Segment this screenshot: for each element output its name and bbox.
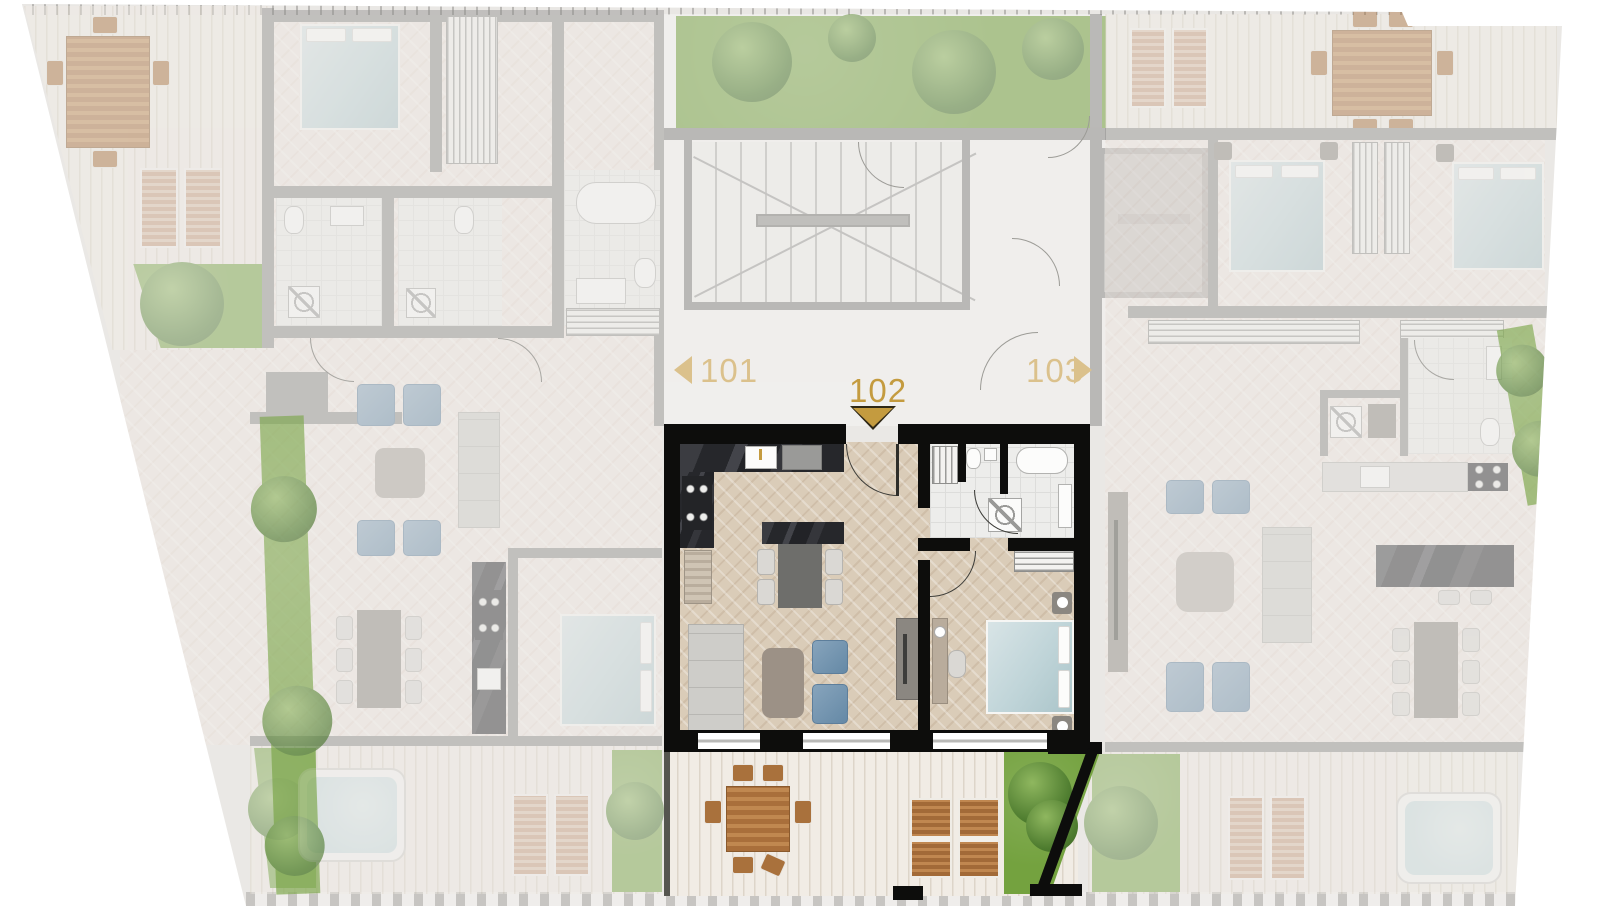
nav-prev-unit[interactable]: 101: [674, 354, 766, 386]
unit-101-region[interactable]: [120, 10, 662, 894]
nav-current-unit: 102: [845, 374, 903, 430]
unit-103-region[interactable]: [1105, 140, 1545, 894]
unit-102-region[interactable]: [664, 424, 1090, 896]
arrow-right-icon[interactable]: [1074, 356, 1092, 384]
nav-current-label: 102: [849, 374, 907, 407]
floorplan-canvas: 101 103 102: [0, 0, 1600, 910]
selected-unit-marker-icon: [850, 406, 896, 430]
nav-prev-label[interactable]: 101: [700, 354, 758, 387]
building-outline: [0, 0, 1600, 910]
arrow-left-icon[interactable]: [674, 356, 692, 384]
selected-unit-marker-fill: [853, 408, 893, 427]
nav-next-unit[interactable]: 103: [1026, 354, 1092, 386]
